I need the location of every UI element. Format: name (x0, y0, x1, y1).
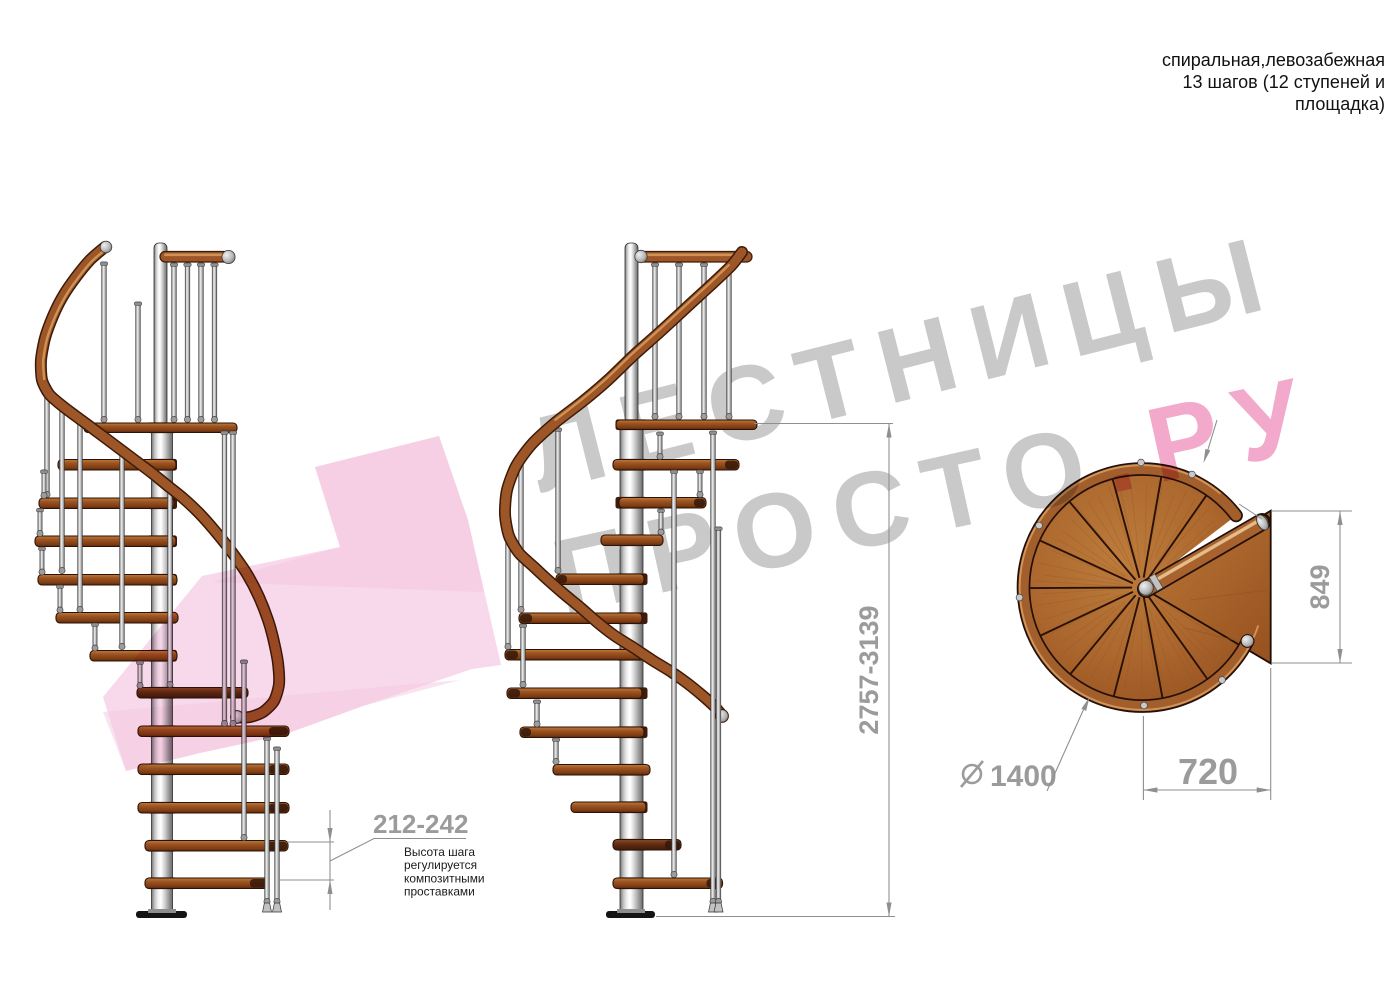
svg-text:площадка): площадка) (1295, 94, 1385, 114)
svg-text:1400: 1400 (990, 760, 1057, 793)
svg-text:2757-3139: 2757-3139 (854, 605, 884, 734)
svg-text:212-242: 212-242 (373, 809, 468, 839)
svg-text:проставками: проставками (404, 885, 475, 899)
svg-text:регулируется: регулируется (404, 858, 477, 872)
svg-text:849: 849 (1305, 564, 1335, 609)
svg-text:композитными: композитными (404, 871, 485, 885)
svg-text:Высота шага: Высота шага (404, 845, 475, 859)
svg-text:720: 720 (1178, 751, 1238, 792)
svg-text:13 шагов (12 ступеней и: 13 шагов (12 ступеней и (1183, 72, 1386, 92)
svg-text:спиральная,левозабежная: спиральная,левозабежная (1162, 50, 1385, 70)
